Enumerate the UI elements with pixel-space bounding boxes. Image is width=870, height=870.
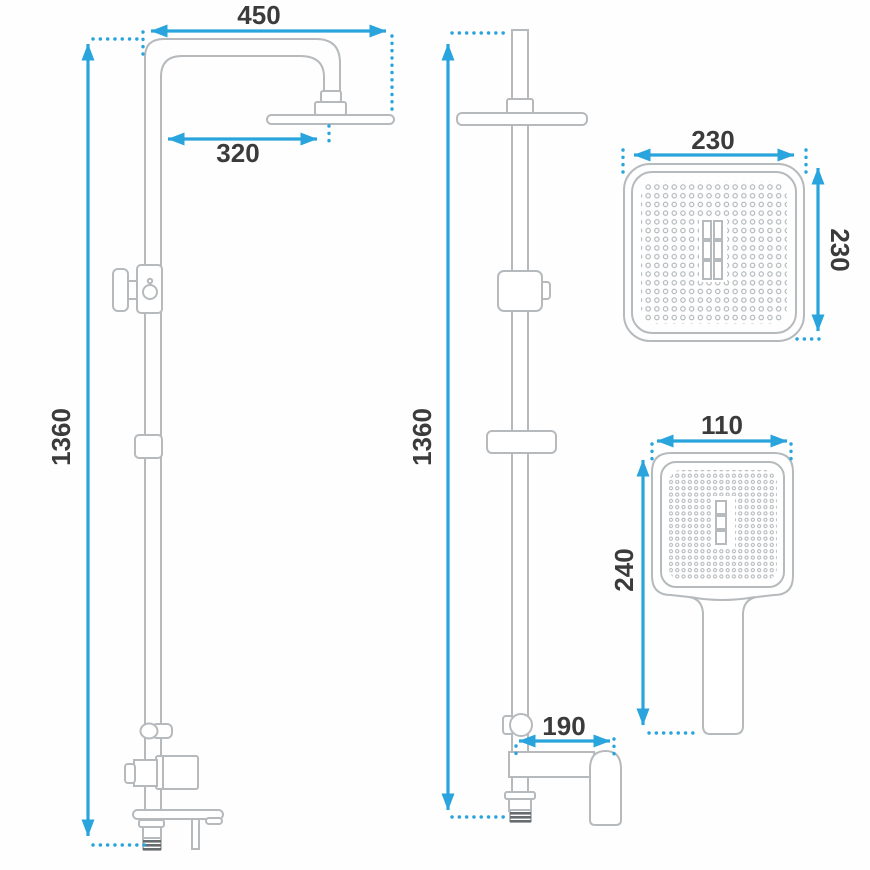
technical-drawing-canvas: 450 320 1360 bbox=[0, 0, 870, 870]
dim-110-label: 110 bbox=[701, 410, 743, 440]
thread-band bbox=[510, 816, 531, 819]
mixer-handle bbox=[134, 760, 157, 786]
mixer-handle-cap bbox=[125, 764, 135, 783]
spout-end bbox=[590, 751, 621, 825]
spout-side bbox=[192, 818, 199, 849]
dim-1360-front-label: 1360 bbox=[407, 408, 437, 466]
dim-190-label: 190 bbox=[542, 711, 585, 741]
dim-230-depth: 230 bbox=[797, 168, 855, 339]
thread-band bbox=[510, 820, 531, 823]
dim-230-width-label: 230 bbox=[691, 125, 734, 155]
dim-320: 320 bbox=[168, 126, 329, 168]
hand-shower-logo-plate bbox=[711, 496, 735, 548]
front-head-connector bbox=[507, 99, 533, 114]
dim-1360-side-label: 1360 bbox=[46, 408, 76, 466]
shelf-clip bbox=[206, 818, 222, 824]
diverter-knob bbox=[510, 714, 532, 736]
soap-dish bbox=[487, 431, 556, 453]
bottom-threads bbox=[143, 838, 161, 849]
head-connector bbox=[315, 102, 346, 115]
shower-set-diagram: 450 320 1360 bbox=[0, 0, 870, 870]
bottom-flange bbox=[139, 820, 164, 827]
dim-240-label: 240 bbox=[609, 548, 639, 591]
riser-pipe-inner bbox=[161, 56, 324, 820]
dim-230-width: 230 bbox=[623, 125, 806, 178]
thread-band bbox=[143, 848, 161, 851]
shower-column-front-view: 1360 190 bbox=[407, 30, 621, 825]
spout-body bbox=[509, 752, 594, 777]
rain-head-detail: 230 230 bbox=[623, 125, 855, 341]
wall-plate bbox=[113, 269, 128, 311]
front-pipe bbox=[512, 30, 528, 820]
dim-230-depth-label: 230 bbox=[825, 228, 855, 271]
rain-head-side bbox=[267, 115, 394, 124]
holder-ring bbox=[141, 724, 158, 739]
rain-head-edge bbox=[457, 113, 587, 125]
front-bracket-block bbox=[498, 271, 542, 311]
head-collar bbox=[321, 91, 341, 102]
thread-band bbox=[510, 812, 531, 815]
bracket-block bbox=[137, 265, 162, 313]
dim-320-label: 320 bbox=[216, 138, 259, 168]
dim-450-label: 450 bbox=[237, 0, 280, 30]
dim-1360-front: 1360 bbox=[407, 33, 507, 817]
dim-190: 190 bbox=[516, 711, 614, 757]
thread-band bbox=[143, 840, 161, 843]
shower-column-side-view: 450 320 1360 bbox=[46, 0, 394, 851]
front-flange bbox=[505, 792, 535, 799]
front-threads bbox=[510, 810, 531, 821]
slider-block bbox=[135, 435, 162, 458]
hand-shower-detail: 110 240 bbox=[609, 410, 793, 734]
